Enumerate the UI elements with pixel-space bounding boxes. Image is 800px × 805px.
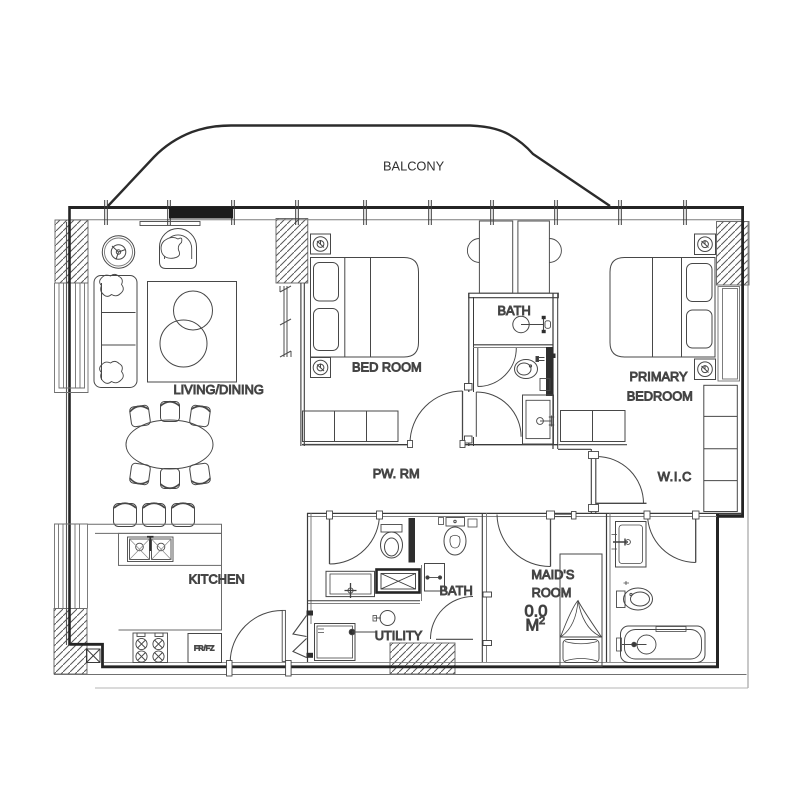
svg-text:UTILITY: UTILITY [375,628,423,643]
svg-text:W.I.C: W.I.C [658,469,692,484]
svg-text:FR/FZ: FR/FZ [194,644,215,653]
svg-text:MAID'S: MAID'S [531,567,574,582]
svg-text:PRIMARY: PRIMARY [630,369,689,384]
svg-text:BATH: BATH [440,583,473,598]
svg-text:LIVING/DINING: LIVING/DINING [174,382,264,397]
svg-text:BALCONY: BALCONY [383,159,445,174]
svg-text:BATH: BATH [498,303,531,318]
svg-text:BEDROOM: BEDROOM [627,389,693,404]
svg-text:PW. RM: PW. RM [373,466,420,481]
svg-text:BED ROOM: BED ROOM [352,360,422,375]
svg-text:KITCHEN: KITCHEN [189,572,245,587]
svg-text:2: 2 [539,615,545,627]
svg-text:M: M [526,617,540,635]
svg-text:ROOM: ROOM [532,585,572,600]
